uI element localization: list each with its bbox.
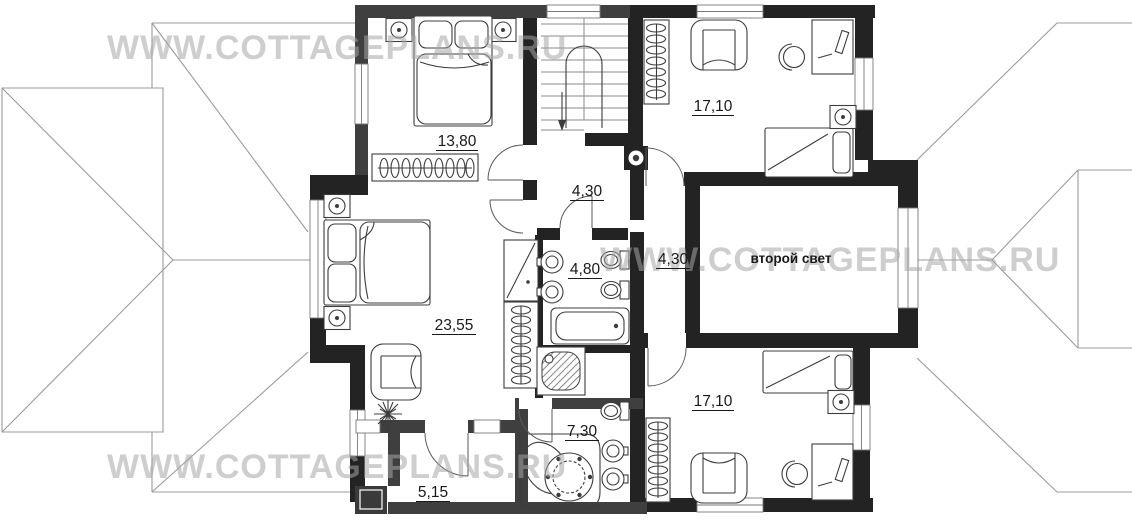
nightstand-lamp-icon bbox=[324, 195, 350, 218]
stair-direction-arrow bbox=[558, 92, 566, 131]
floor-plan-page: WWW.COTTAGEPLANS.RU WWW.COTTAGEPLANS.RU … bbox=[0, 0, 1132, 520]
room-label-bedroom-left: 23,55 bbox=[435, 317, 474, 334]
room-label-bathroom: 4,80 bbox=[570, 261, 601, 278]
desk-chair bbox=[779, 44, 805, 70]
chimney-vent-icon bbox=[624, 146, 648, 170]
chimney bbox=[355, 486, 387, 514]
armchair bbox=[371, 344, 421, 400]
nightstand-lamp-icon bbox=[828, 391, 854, 414]
room-label-bedroom-bottom-right: 17,10 bbox=[694, 393, 733, 410]
nightstand-lamp-icon bbox=[324, 307, 350, 330]
armchair bbox=[691, 20, 747, 70]
armchair bbox=[691, 453, 747, 503]
watermark-text: WWW.COTTAGEPLANS.RU bbox=[107, 448, 567, 486]
wardrobe-hangers bbox=[646, 418, 670, 502]
room-label-bedroom-top-left: 13,80 bbox=[438, 133, 477, 150]
desk bbox=[812, 444, 853, 500]
room-label-stair-hall: 4,30 bbox=[572, 183, 603, 200]
watermark-text: WWW.COTTAGEPLANS.RU bbox=[107, 29, 567, 67]
plant bbox=[374, 400, 402, 428]
room-label-second-light: второй свет bbox=[751, 251, 832, 266]
double-bed bbox=[324, 220, 430, 305]
room-label-bathroom-bottom: 7,30 bbox=[567, 423, 598, 440]
desk-chair bbox=[782, 461, 808, 487]
single-bed bbox=[765, 128, 853, 177]
bedroom-bottom-right-furniture bbox=[646, 351, 854, 503]
room-label-bedroom-top-right: 17,10 bbox=[694, 98, 733, 115]
bathtub bbox=[551, 308, 629, 344]
roof-outline-left bbox=[2, 23, 357, 492]
toilet-icon bbox=[601, 402, 629, 420]
wardrobe-hangers bbox=[504, 302, 538, 388]
room-label-balcony: 5,15 bbox=[418, 484, 448, 501]
room-label-corridor: 4,30 bbox=[658, 251, 689, 268]
shower-stall bbox=[537, 347, 585, 395]
bedroom-top-right-furniture bbox=[644, 20, 856, 177]
desk bbox=[812, 20, 853, 74]
nightstand-lamp-icon bbox=[830, 106, 856, 129]
closet-panel bbox=[504, 240, 538, 301]
toilet-icon bbox=[601, 281, 629, 299]
single-bed bbox=[763, 351, 853, 393]
sink-icon bbox=[602, 468, 628, 490]
floor-plan-drawing: WWW.COTTAGEPLANS.RU WWW.COTTAGEPLANS.RU … bbox=[0, 0, 1132, 520]
wardrobe-hangers bbox=[644, 20, 669, 104]
wardrobe-hangers bbox=[372, 154, 478, 181]
sink-icon bbox=[602, 440, 628, 462]
